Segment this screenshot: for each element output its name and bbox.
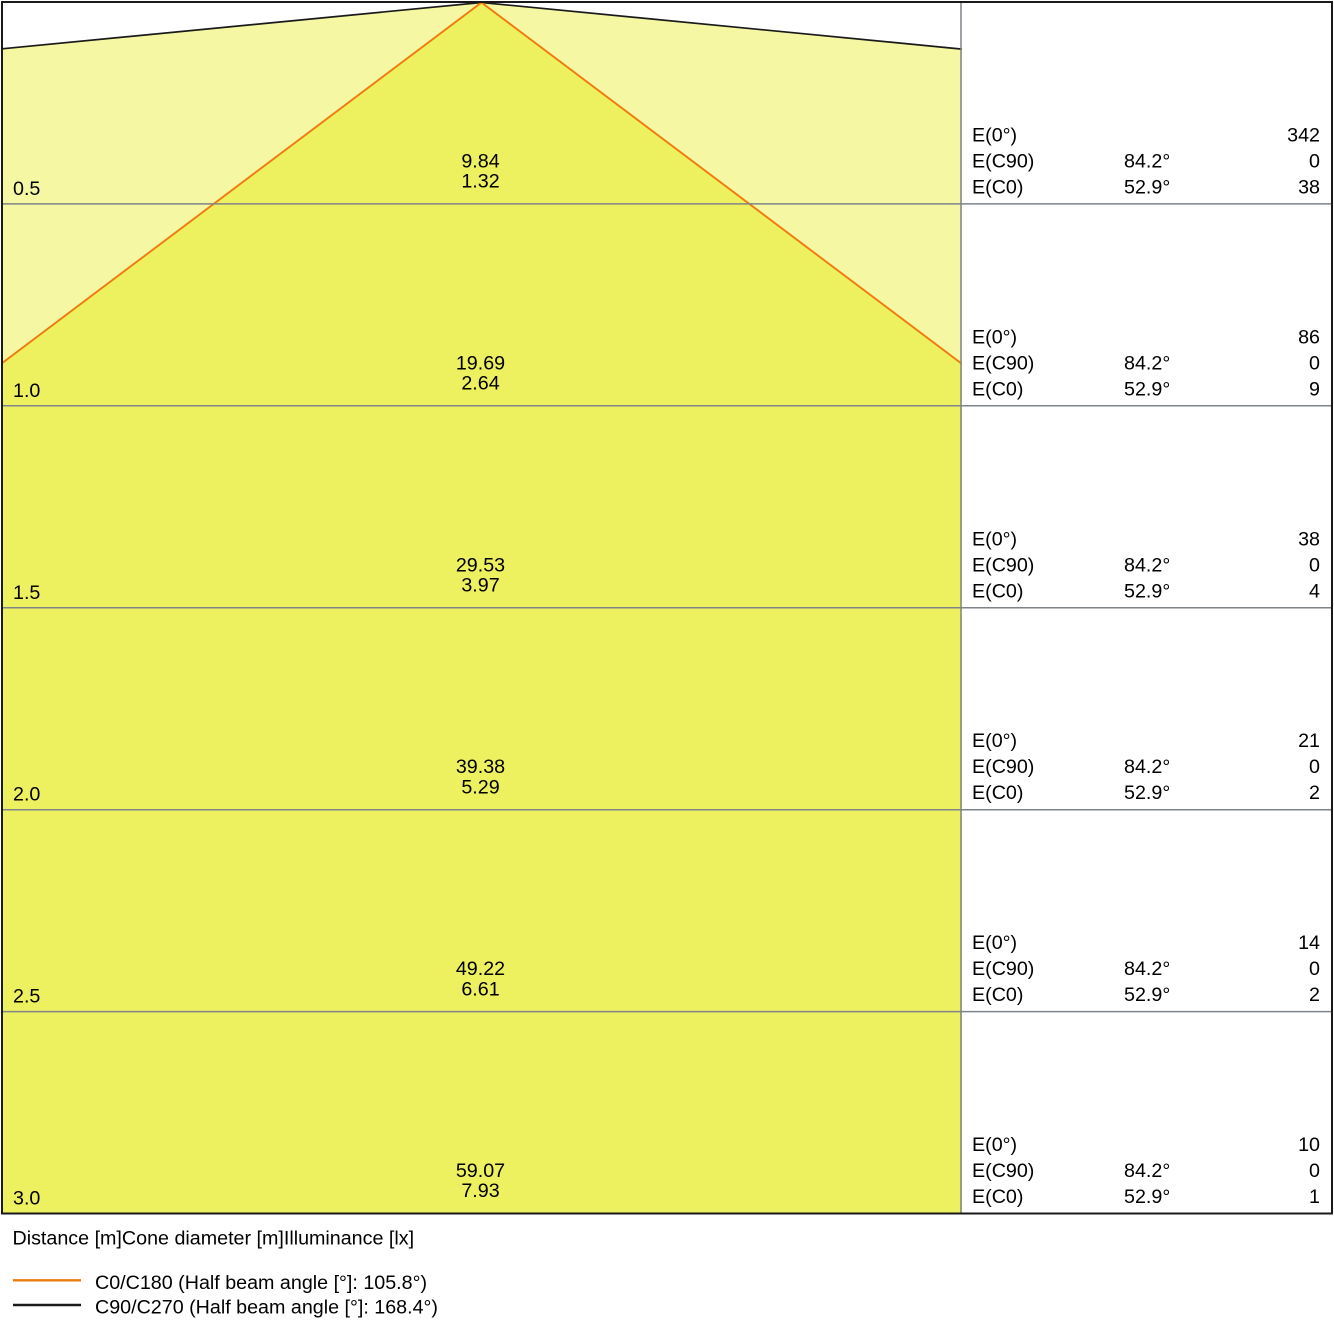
svg-text:1: 1 <box>1309 1186 1320 1208</box>
svg-text:9: 9 <box>1309 378 1320 400</box>
svg-text:E(0°): E(0°) <box>972 1134 1017 1156</box>
svg-text:52.9°: 52.9° <box>1124 984 1170 1006</box>
svg-text:29.53: 29.53 <box>456 554 505 576</box>
svg-text:52.9°: 52.9° <box>1124 378 1170 400</box>
svg-text:Distance [m]Cone diameter [m]I: Distance [m]Cone diameter [m]Illuminance… <box>13 1228 415 1250</box>
svg-text:84.2°: 84.2° <box>1124 958 1170 980</box>
svg-text:0: 0 <box>1309 756 1320 778</box>
svg-text:E(0°): E(0°) <box>972 932 1017 954</box>
svg-text:E(C90): E(C90) <box>972 958 1034 980</box>
svg-text:9.84: 9.84 <box>461 150 499 172</box>
svg-text:2.64: 2.64 <box>461 373 499 395</box>
svg-text:7.93: 7.93 <box>461 1180 499 1202</box>
svg-text:5.29: 5.29 <box>461 776 499 798</box>
svg-text:2.0: 2.0 <box>13 784 40 806</box>
svg-text:38: 38 <box>1298 528 1320 550</box>
svg-text:6.61: 6.61 <box>461 978 499 1000</box>
svg-text:14: 14 <box>1298 932 1320 954</box>
svg-text:84.2°: 84.2° <box>1124 352 1170 374</box>
svg-text:E(C0): E(C0) <box>972 378 1023 400</box>
svg-text:E(C0): E(C0) <box>972 176 1023 198</box>
svg-text:1.5: 1.5 <box>13 582 40 604</box>
svg-text:84.2°: 84.2° <box>1124 1160 1170 1182</box>
svg-text:0: 0 <box>1309 150 1320 172</box>
svg-text:52.9°: 52.9° <box>1124 782 1170 804</box>
svg-text:1.32: 1.32 <box>461 171 499 193</box>
svg-text:E(C90): E(C90) <box>972 554 1034 576</box>
svg-text:86: 86 <box>1298 326 1320 348</box>
svg-text:38: 38 <box>1298 176 1320 198</box>
svg-text:0: 0 <box>1309 554 1320 576</box>
svg-text:10: 10 <box>1298 1134 1320 1156</box>
svg-text:52.9°: 52.9° <box>1124 580 1170 602</box>
svg-text:E(C0): E(C0) <box>972 782 1023 804</box>
svg-text:2: 2 <box>1309 984 1320 1006</box>
svg-text:E(0°): E(0°) <box>972 326 1017 348</box>
svg-text:C0/C180 (Half beam angle [°]:: C0/C180 (Half beam angle [°]: 105.8°) <box>95 1272 427 1294</box>
svg-text:84.2°: 84.2° <box>1124 150 1170 172</box>
svg-text:E(C90): E(C90) <box>972 150 1034 172</box>
svg-text:84.2°: 84.2° <box>1124 554 1170 576</box>
svg-text:E(0°): E(0°) <box>972 528 1017 550</box>
svg-text:0: 0 <box>1309 958 1320 980</box>
svg-text:E(C0): E(C0) <box>972 1186 1023 1208</box>
svg-text:3.0: 3.0 <box>13 1188 40 1210</box>
svg-text:2: 2 <box>1309 782 1320 804</box>
svg-text:E(C90): E(C90) <box>972 352 1034 374</box>
svg-text:2.5: 2.5 <box>13 986 40 1008</box>
svg-text:59.07: 59.07 <box>456 1160 505 1182</box>
svg-text:C90/C270 (Half beam angle [°]:: C90/C270 (Half beam angle [°]: 168.4°) <box>95 1296 438 1318</box>
svg-text:84.2°: 84.2° <box>1124 756 1170 778</box>
svg-text:0: 0 <box>1309 352 1320 374</box>
svg-text:E(C0): E(C0) <box>972 984 1023 1006</box>
svg-text:E(0°): E(0°) <box>972 124 1017 146</box>
svg-text:3.97: 3.97 <box>461 575 499 597</box>
svg-text:39.38: 39.38 <box>456 756 505 778</box>
svg-text:E(0°): E(0°) <box>972 730 1017 752</box>
svg-text:52.9°: 52.9° <box>1124 1186 1170 1208</box>
svg-text:52.9°: 52.9° <box>1124 176 1170 198</box>
svg-text:4: 4 <box>1309 580 1320 602</box>
svg-text:19.69: 19.69 <box>456 352 505 374</box>
svg-text:E(C90): E(C90) <box>972 1160 1034 1182</box>
svg-text:49.22: 49.22 <box>456 958 505 980</box>
svg-text:21: 21 <box>1298 730 1320 752</box>
svg-text:E(C0): E(C0) <box>972 580 1023 602</box>
svg-text:1.0: 1.0 <box>13 380 40 402</box>
svg-text:E(C90): E(C90) <box>972 756 1034 778</box>
svg-text:0.5: 0.5 <box>13 178 40 200</box>
svg-text:0: 0 <box>1309 1160 1320 1182</box>
svg-text:342: 342 <box>1287 124 1320 146</box>
